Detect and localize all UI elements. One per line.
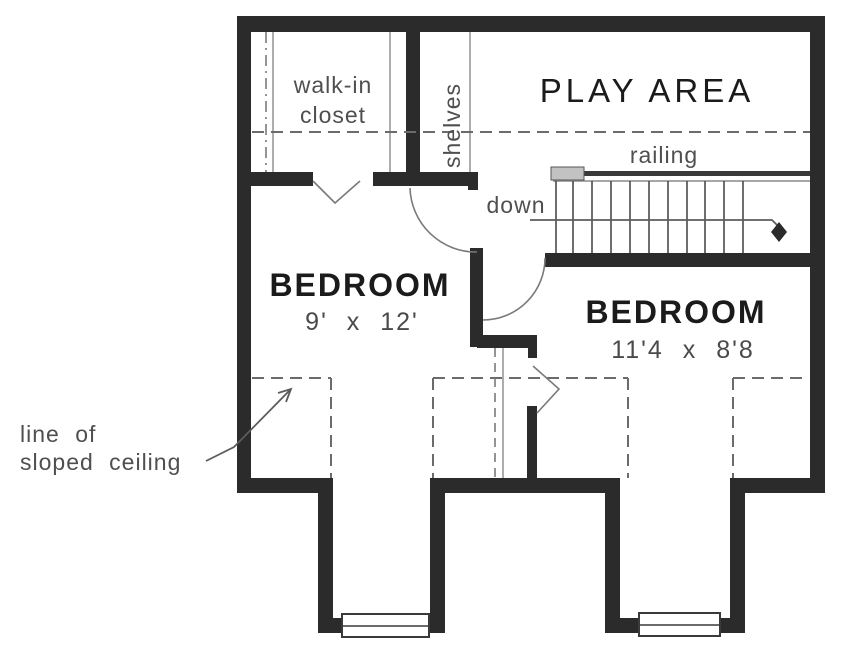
right-dormer-west-wall [605,478,620,633]
closet-door-chevron [313,181,360,203]
play-area-label: PLAY AREA [540,72,755,109]
left-dormer-east-wall [430,478,445,633]
center-closet-door-chevron [533,366,559,413]
walk-in-closet-label-line2: closet [300,102,366,128]
floor-plan-svg: walk-in closet shelves PLAY AREA railing… [0,0,857,663]
center-closet-east-wall [527,406,537,478]
railing-end-cap [551,167,584,180]
right-dormer-bottom-a [605,618,642,633]
stairs [530,167,810,253]
floor-plan: walk-in closet shelves PLAY AREA railing… [0,0,857,663]
right-dormer-east-wall [730,478,745,633]
closet-front-wall-right [373,172,478,186]
wall-bottom-middle [430,478,620,493]
hall-divider-wall [470,248,483,347]
sloped-ceiling-note-line1: line of [20,421,96,447]
walk-in-closet-label-line1: walk-in [293,72,373,98]
sloped-ceiling-note-line2: sloped ceiling [20,449,181,475]
closet-separator-wall [406,32,420,186]
shelves-label: shelves [439,83,465,168]
wall-right [810,16,825,493]
bedroom-right-dimensions: 11'4 x 8'8 [611,336,755,364]
wall-bottom-right [730,478,825,493]
left-dormer-west-wall [318,478,333,633]
down-label: down [487,192,546,218]
closet-front-wall-left [251,172,313,186]
bedroom-left-label: BEDROOM [269,267,450,303]
railing-label: railing [630,142,698,168]
stair-bottom-wall [545,253,810,267]
center-closet-jamb [528,346,537,358]
down-direction-line [530,220,777,225]
closet-front-wall-jamb [468,172,478,190]
wall-left [237,16,251,493]
right-bedroom-door-swing [483,258,545,320]
windows [342,613,720,637]
down-arrowhead-icon [771,222,787,242]
bedroom-right-label: BEDROOM [585,294,766,330]
bedroom-left-dimensions: 9' x 12' [305,308,419,336]
left-bedroom-door-swing [410,188,477,252]
wall-top [237,16,825,32]
railing-bar [553,171,810,176]
